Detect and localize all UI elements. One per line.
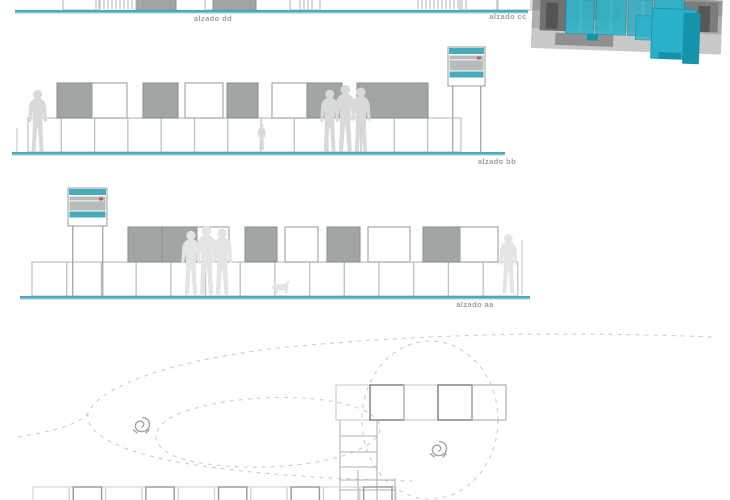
architectural-drawing-canvas [0, 0, 730, 500]
cube-outline [275, 262, 310, 296]
cube-outline [67, 262, 102, 296]
cube-grey [57, 83, 92, 118]
plan-cube-cut [142, 487, 178, 500]
cube-fragment-grey [213, 0, 256, 10]
cube-outline [379, 262, 414, 296]
cube-outline [310, 262, 345, 296]
cube-outline [101, 262, 136, 296]
cube-white [272, 83, 307, 118]
plan-cube-cut-dark [291, 487, 319, 500]
cube-outline [161, 118, 194, 152]
cube-outline [428, 118, 461, 152]
cube-fragment-grey [136, 0, 176, 10]
cube-outline [414, 262, 449, 296]
cube-grey [423, 227, 460, 262]
sign-leg [480, 86, 481, 152]
cube-grey [327, 227, 360, 262]
ground-line-halo [15, 13, 528, 14]
plan-cube-cut [251, 487, 287, 500]
pavilion-render-block [682, 13, 700, 64]
label-alzado-aa: alzado aa [456, 300, 493, 309]
plan-cube-cut [323, 487, 359, 500]
cube-outline [448, 262, 483, 296]
ground-line-halo [12, 155, 505, 156]
label-alzado-cc: alzado cc [489, 12, 526, 21]
sign-leg [72, 226, 73, 296]
cube-outline [394, 118, 427, 152]
sign-footer-band [70, 212, 106, 218]
cube-white [460, 227, 498, 262]
elevation-bb [12, 47, 505, 156]
plan-cube [472, 385, 506, 420]
circulation-path [156, 397, 380, 467]
cube-outline [95, 118, 128, 152]
photo-grey-block [546, 2, 559, 28]
pavilion-render-block [595, 0, 626, 35]
pavilion-render-block [587, 34, 597, 40]
label-alzado-bb: alzado bb [478, 157, 516, 166]
ground-line-halo [20, 299, 530, 300]
plan-cube [370, 385, 404, 420]
photo-inset-group [531, 0, 723, 65]
pavilion-render-block [565, 0, 594, 34]
cube-outline [228, 118, 261, 152]
plan-person-figure [133, 418, 150, 434]
drawing-sheet: { "sheet": {"title": "modular cube pavil… [0, 0, 730, 500]
plan-cube-cut [215, 487, 251, 500]
cube-outline [294, 118, 327, 152]
plan-cube [336, 385, 370, 420]
cube-fragment [497, 0, 531, 10]
sign-footer-band [450, 72, 484, 78]
sign-red-accent [477, 57, 481, 60]
elevation-dd-cc-remnant [15, 0, 531, 14]
cube-outline [261, 118, 294, 152]
person-silhouette [28, 90, 47, 152]
drawing-svg [0, 0, 730, 500]
cube-white [368, 227, 410, 262]
cube-grey [227, 83, 258, 118]
plan-cube-cut-dark [73, 487, 101, 500]
cube-outline [61, 118, 94, 152]
sign-red-accent [99, 198, 103, 201]
cube-grey [143, 83, 178, 118]
sign-header-band [449, 48, 484, 54]
plan-cube [404, 385, 438, 420]
plan-cube-cut [33, 487, 69, 500]
ground-line [15, 10, 528, 13]
sign-header-band [69, 189, 106, 195]
cube-grey [245, 227, 277, 262]
plan-cube-cut [106, 487, 142, 500]
person-silhouette [499, 234, 517, 294]
plan-cube-cut [360, 487, 396, 500]
cube-white [92, 83, 127, 118]
plan-cube-cut [178, 487, 214, 500]
ground-line [20, 296, 530, 299]
label-alzado-dd: alzado dd [194, 14, 232, 23]
plan-view [18, 334, 712, 500]
plan-cube-cut-dark [219, 487, 247, 500]
elevation-aa [20, 188, 530, 300]
ground-line [12, 152, 505, 155]
cube-fragment [63, 0, 99, 10]
cube-outline [344, 262, 379, 296]
cube-white [285, 227, 318, 262]
cube-outline [128, 118, 161, 152]
cube-outline [32, 262, 67, 296]
plan-person-figure [430, 442, 447, 458]
plan-cube-cut [69, 487, 105, 500]
cube-white [185, 83, 223, 118]
cube-outline [136, 262, 171, 296]
cube-outline [240, 262, 275, 296]
cube-outline [195, 118, 228, 152]
plan-cube-cut-dark [146, 487, 174, 500]
pavilion-render-block [659, 52, 681, 59]
sign-photo-line [70, 200, 104, 201]
plan-cube [438, 385, 472, 420]
plan-cube-cut [287, 487, 323, 500]
sign-leg [102, 226, 103, 296]
plan-cube-cut-dark [364, 487, 392, 500]
cube-fragment [290, 0, 320, 10]
cube-grey [128, 227, 162, 262]
sign-leg [452, 86, 453, 152]
photo-inset [531, 0, 723, 65]
